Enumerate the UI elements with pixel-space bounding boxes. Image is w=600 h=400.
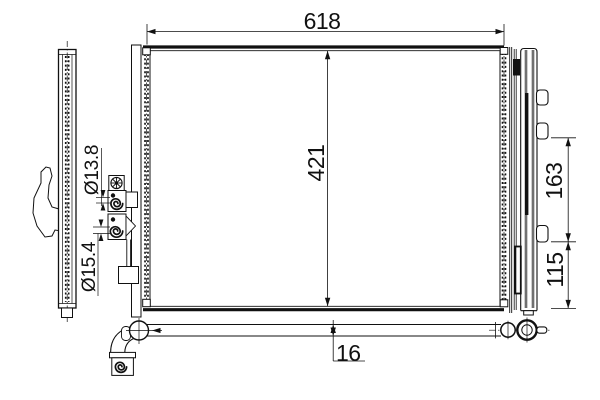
dim-port-upper-label: Ø13.8 xyxy=(82,132,102,208)
dim-mount-span-upper-label: 163 xyxy=(542,151,566,211)
dim-overall-height-label: 421 xyxy=(304,133,328,193)
bottom-pipe-view xyxy=(110,318,552,376)
handwheel-icon xyxy=(111,177,122,188)
condenser-technical-drawing: 618 421 163 115 16 Ø13.8 Ø15.4 xyxy=(0,0,600,400)
bolt-head-icon xyxy=(517,318,536,343)
left-side-view xyxy=(33,41,76,322)
dim-port-lower-label: Ø15.4 xyxy=(79,229,99,305)
dim-overall-width-label: 618 xyxy=(292,10,352,33)
dim-pipe-diameter-label: 16 xyxy=(336,342,376,365)
dim-mount-span-lower-label: 115 xyxy=(543,240,567,300)
crosshair-union-icon xyxy=(501,321,515,339)
